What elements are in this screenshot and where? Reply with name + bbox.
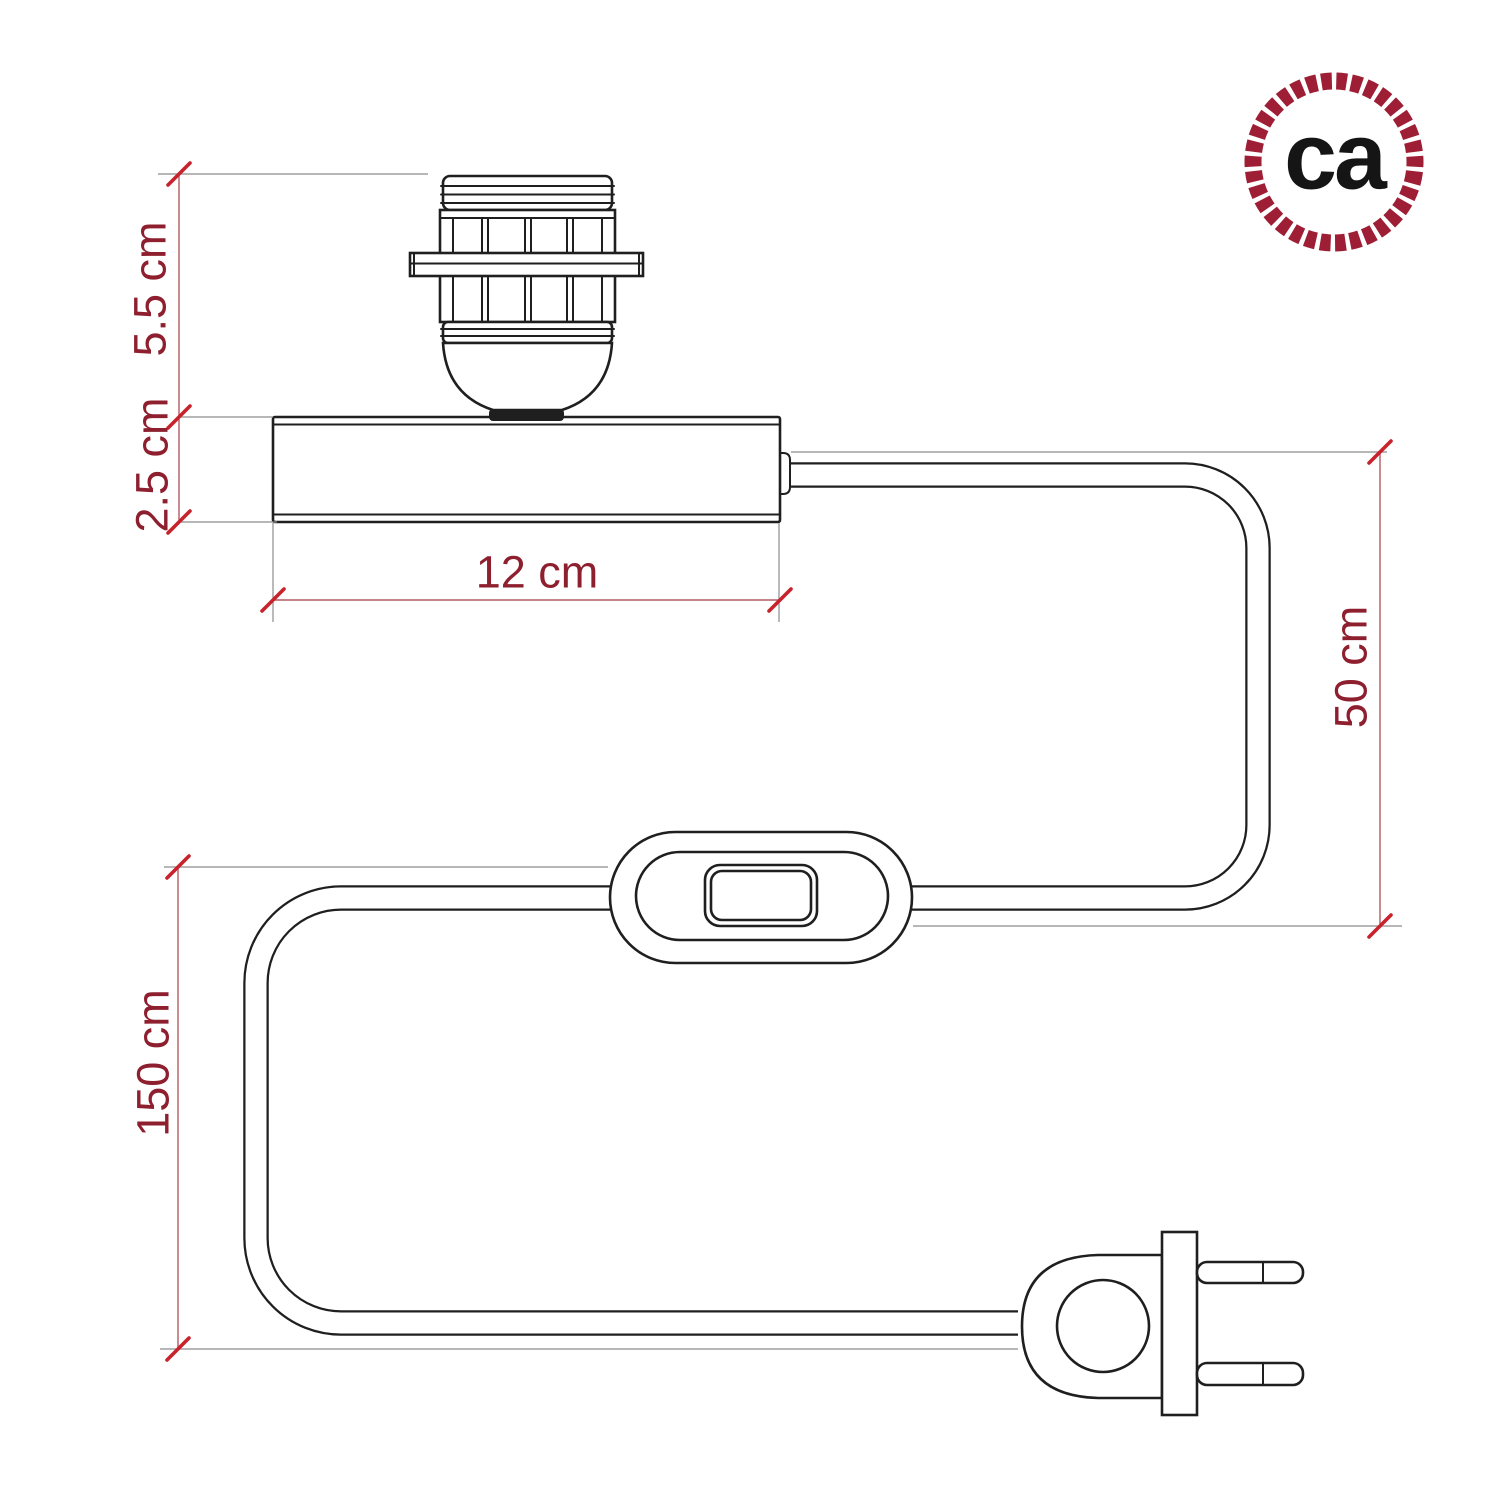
lamp-socket-drawing [410,176,643,421]
dimension-label-lower-cable-length: 150 cm [131,989,176,1137]
two-pin-plug-drawing [1022,1232,1303,1415]
dimension-label-base-height: 2.5 cm [130,397,175,532]
dimension-label-base-width: 12 cm [476,550,599,595]
dimension-socket-height [158,163,428,417]
socket-lower-thread [443,322,612,343]
dimension-label-upper-cable-length: 50 cm [1329,606,1374,729]
inline-switch-drawing [610,832,912,963]
plug-face-bar [1162,1232,1197,1415]
diagram-canvas: 5.5 cm 2.5 cm 12 cm 50 cm 150 cm ca [0,0,1500,1500]
dimension-base-height [168,406,277,533]
socket-top-thread [443,176,612,210]
dimension-label-socket-height: 5.5 cm [128,221,173,356]
brand-logo-text: ca [1284,102,1384,211]
brand-logo: ca [1244,72,1424,252]
base-body [273,417,780,522]
socket-foot [489,409,564,421]
plug-pin-bottom [1197,1363,1303,1385]
plug-pin-top [1197,1262,1303,1283]
switch-button [705,865,817,926]
socket-cup [443,343,612,410]
plug-body-circle [1057,1280,1149,1372]
lamp-base-drawing [273,417,790,522]
